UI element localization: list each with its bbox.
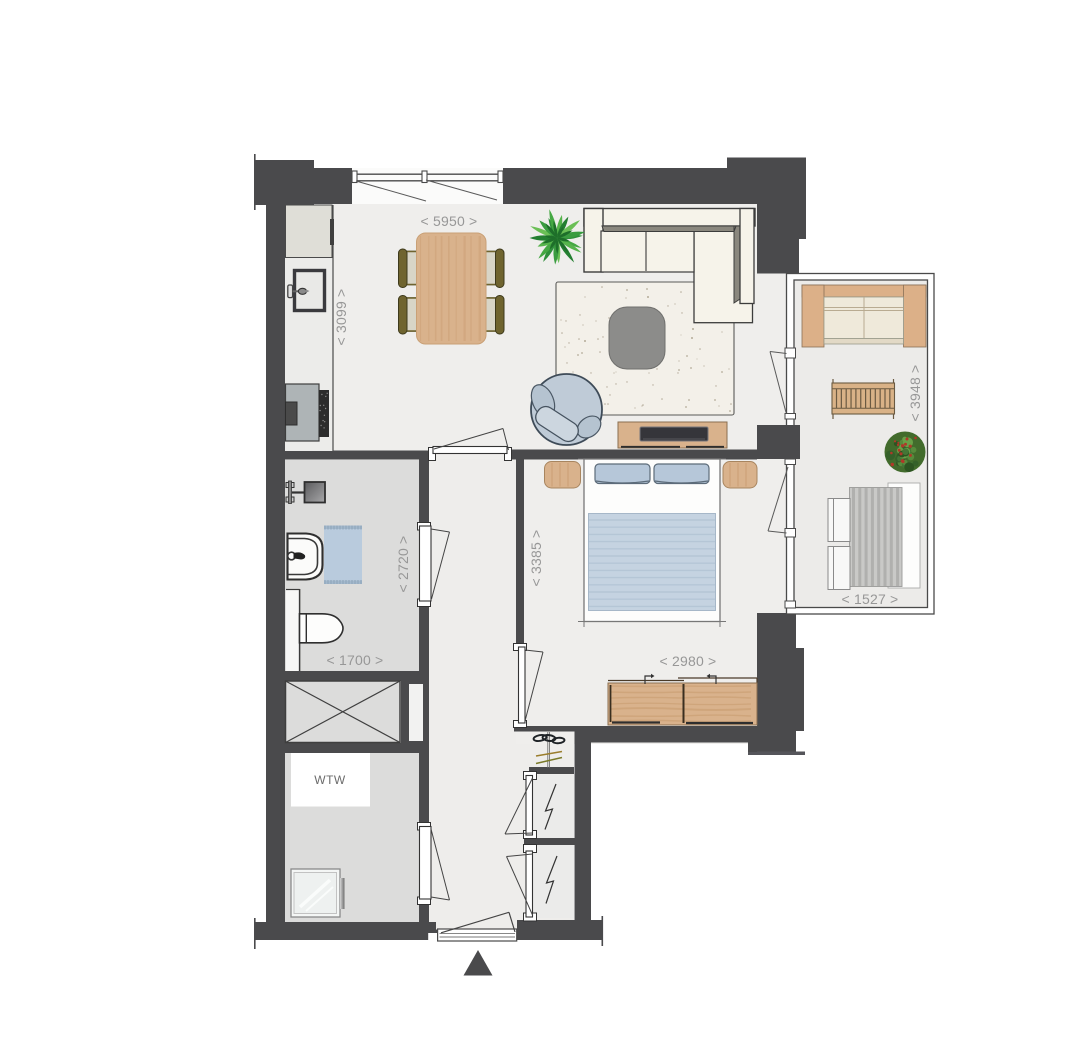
svg-text:< 3099 >: < 3099 > xyxy=(333,289,349,346)
svg-text:< 5950 >: < 5950 > xyxy=(421,213,478,229)
svg-text:< 1527 >: < 1527 > xyxy=(842,591,899,607)
svg-text:WTW: WTW xyxy=(314,773,346,787)
svg-text:< 3385 >: < 3385 > xyxy=(528,530,544,587)
svg-text:< 3948 >: < 3948 > xyxy=(907,365,923,422)
svg-text:< 1700 >: < 1700 > xyxy=(327,652,384,668)
svg-text:< 2720 >: < 2720 > xyxy=(395,536,411,593)
svg-text:< 2980 >: < 2980 > xyxy=(660,653,717,669)
